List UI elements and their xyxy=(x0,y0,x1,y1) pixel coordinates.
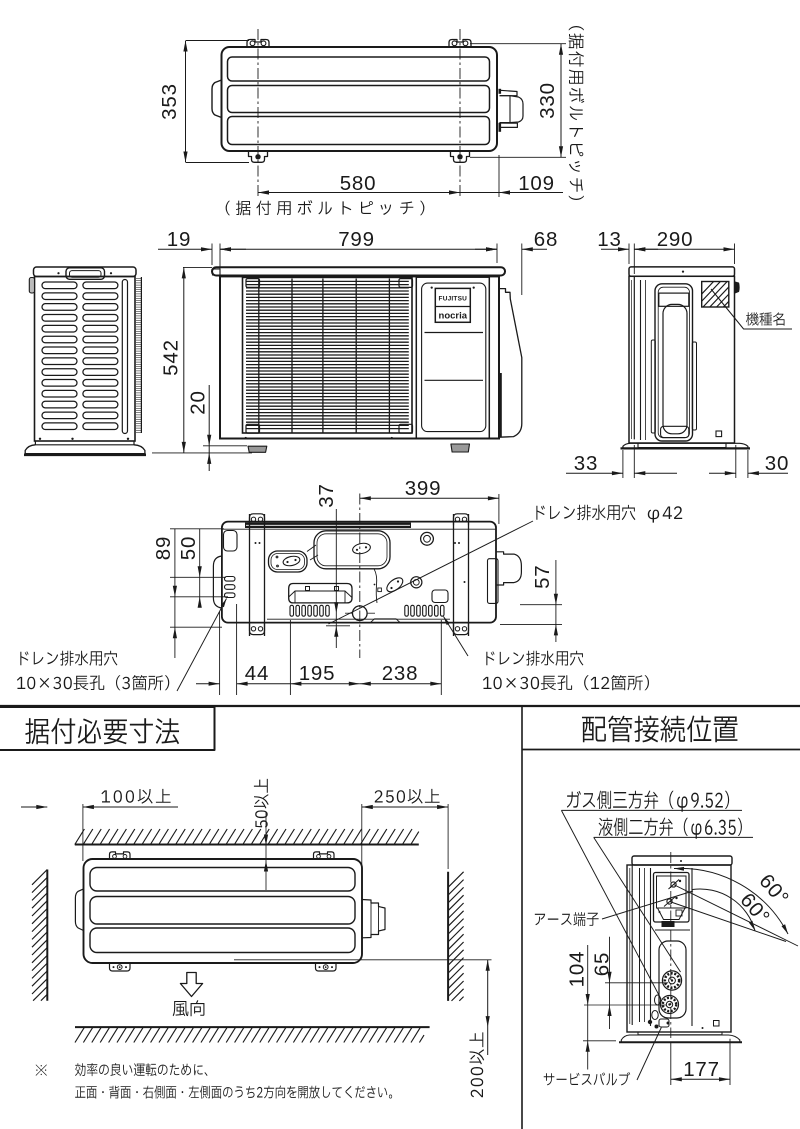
svg-text:177: 177 xyxy=(683,1058,720,1081)
svg-text:238: 238 xyxy=(382,662,419,685)
svg-text:290: 290 xyxy=(657,228,694,251)
svg-text:13: 13 xyxy=(597,228,621,251)
svg-text:50: 50 xyxy=(177,536,200,560)
svg-text:57: 57 xyxy=(531,564,554,588)
svg-text:FUJITSU: FUJITSU xyxy=(439,296,468,303)
svg-text:33: 33 xyxy=(574,452,598,475)
svg-text:nocria: nocria xyxy=(439,311,468,322)
svg-text:68: 68 xyxy=(534,228,558,251)
svg-text:542: 542 xyxy=(160,339,183,376)
svg-text:330: 330 xyxy=(536,82,559,119)
svg-text:399: 399 xyxy=(405,477,442,500)
svg-text:109: 109 xyxy=(518,172,555,195)
svg-text:353: 353 xyxy=(158,83,181,120)
svg-text:44: 44 xyxy=(245,662,269,685)
svg-text:799: 799 xyxy=(338,228,375,251)
svg-text:195: 195 xyxy=(299,662,336,685)
svg-text:20: 20 xyxy=(187,390,210,414)
svg-text:89: 89 xyxy=(152,536,175,560)
svg-text:19: 19 xyxy=(167,228,191,251)
svg-text:65: 65 xyxy=(590,952,613,976)
svg-text:580: 580 xyxy=(340,172,377,195)
svg-text:30: 30 xyxy=(765,452,789,475)
svg-text:37: 37 xyxy=(315,483,338,507)
svg-text:104: 104 xyxy=(566,951,589,988)
